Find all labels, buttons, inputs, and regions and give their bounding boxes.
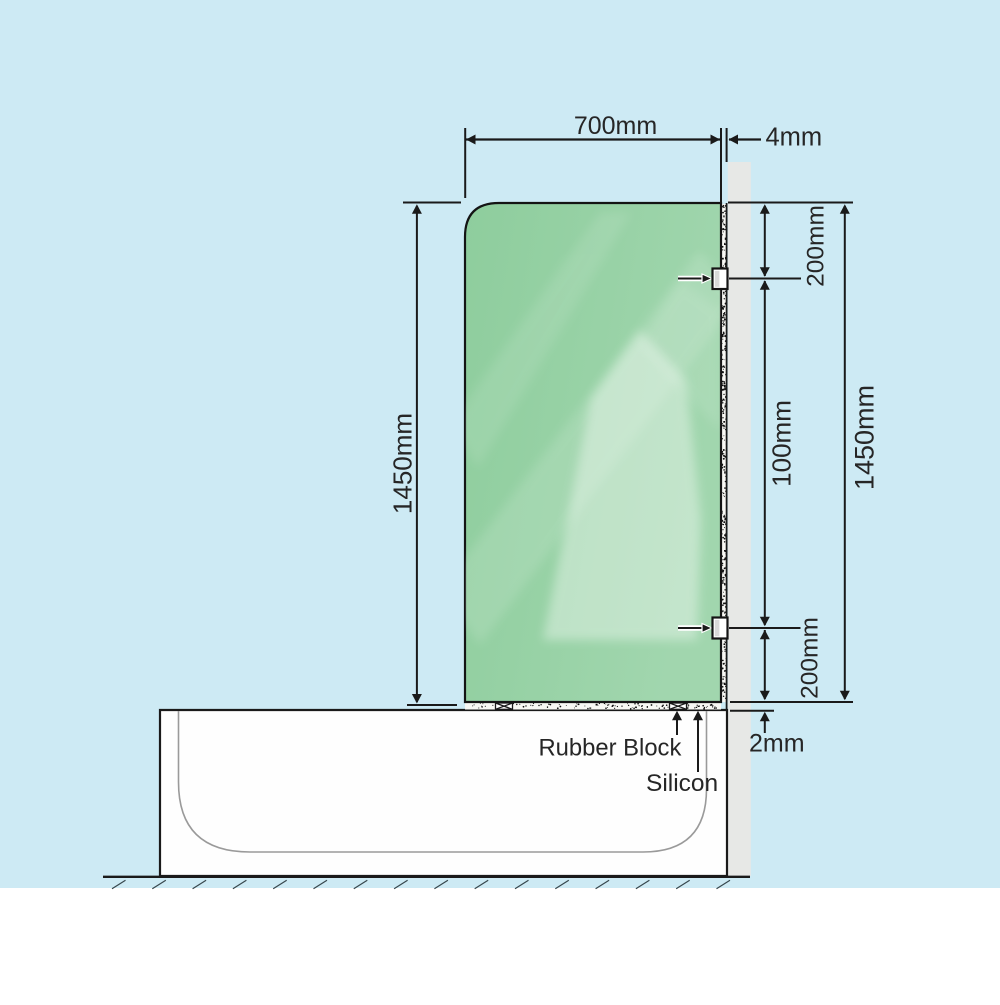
svg-text:700mm: 700mm bbox=[574, 112, 657, 140]
svg-text:Rubber Block: Rubber Block bbox=[539, 735, 682, 762]
svg-text:200mm: 200mm bbox=[803, 205, 830, 287]
svg-text:100mm: 100mm bbox=[767, 400, 797, 487]
svg-text:2mm: 2mm bbox=[749, 730, 805, 758]
svg-text:4mm: 4mm bbox=[766, 124, 823, 152]
svg-text:1450mm: 1450mm bbox=[388, 413, 418, 514]
svg-text:1450mm: 1450mm bbox=[850, 385, 880, 490]
svg-text:200mm: 200mm bbox=[797, 617, 824, 699]
svg-text:Silicon: Silicon bbox=[646, 770, 718, 797]
